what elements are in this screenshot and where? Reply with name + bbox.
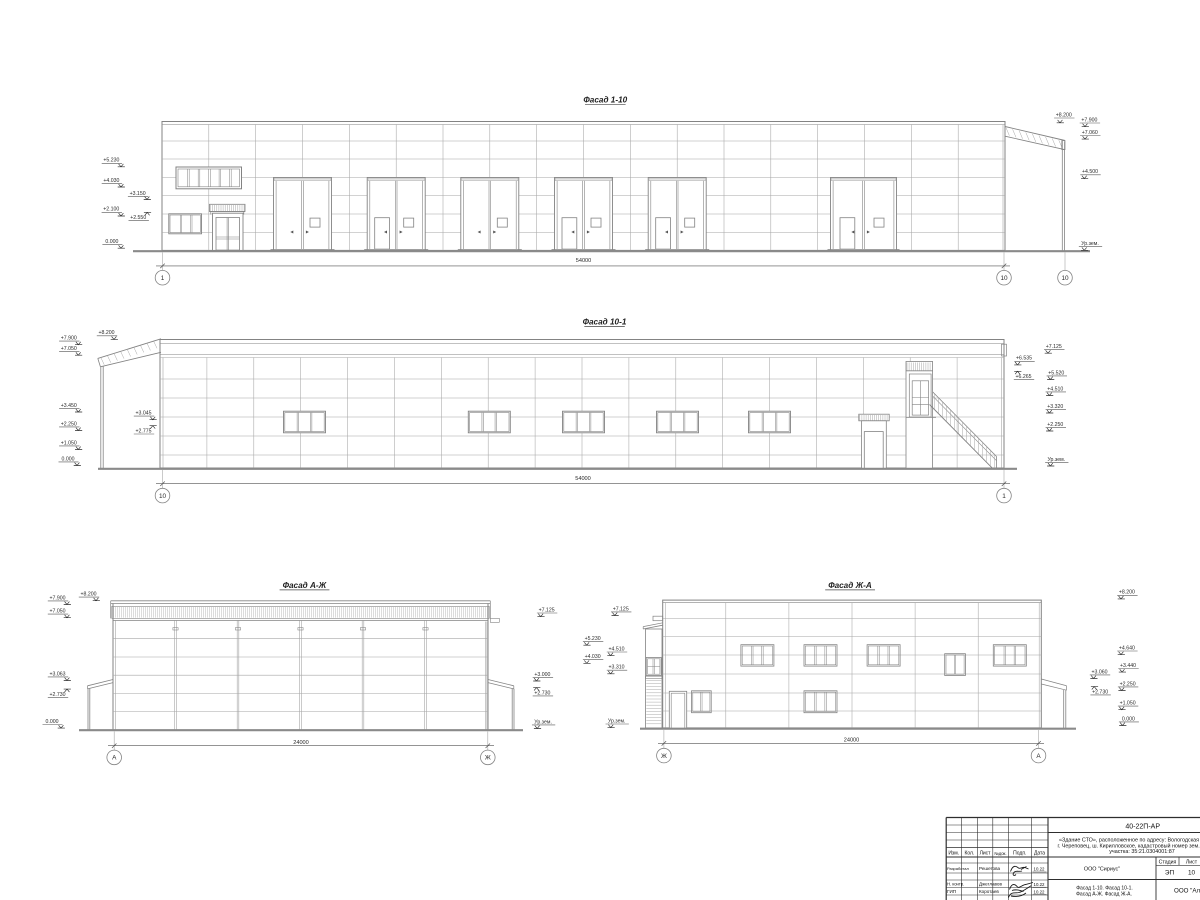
svg-text:1: 1: [161, 275, 165, 282]
svg-text:+3.450: +3.450: [61, 403, 77, 409]
svg-text:10.22: 10.22: [1034, 867, 1046, 872]
svg-text:10.22: 10.22: [1034, 889, 1046, 894]
svg-text:А: А: [112, 755, 117, 762]
svg-text:+8.200: +8.200: [80, 592, 96, 598]
svg-text:54000: 54000: [576, 258, 592, 264]
svg-text:+8.200: +8.200: [1119, 590, 1135, 596]
svg-text:+7.900: +7.900: [61, 336, 77, 342]
svg-text:Ур.зем.: Ур.зем.: [1047, 457, 1065, 463]
svg-text:10: 10: [1000, 275, 1008, 282]
svg-text:+7.125: +7.125: [1046, 344, 1062, 350]
svg-text:Ур.зем.: Ур.зем.: [608, 718, 626, 724]
svg-text:+5.230: +5.230: [585, 636, 601, 642]
svg-text:+3.440: +3.440: [1120, 663, 1136, 669]
svg-text:+2.730: +2.730: [1092, 689, 1108, 695]
svg-text:54000: 54000: [575, 476, 591, 482]
svg-text:№док.: №док.: [994, 851, 1006, 856]
svg-text:+5.230: +5.230: [103, 158, 119, 164]
svg-text:+7.050: +7.050: [61, 346, 77, 352]
svg-text:Лист: Лист: [980, 851, 992, 857]
svg-text:+3.150: +3.150: [130, 191, 146, 197]
svg-text:ЭП: ЭП: [1165, 870, 1175, 877]
svg-text:0.000: 0.000: [62, 456, 75, 462]
svg-text:0.000: 0.000: [46, 719, 59, 725]
svg-text:+7.050: +7.050: [49, 609, 65, 615]
svg-text:+7.125: +7.125: [613, 606, 629, 612]
svg-text:Фасад А-Ж. Фасад Ж-А.: Фасад А-Ж. Фасад Ж-А.: [1076, 892, 1132, 898]
svg-text:Фасад 1-10: Фасад 1-10: [583, 96, 627, 105]
svg-text:Изм.: Изм.: [948, 851, 959, 857]
svg-text:+2.550: +2.550: [130, 215, 146, 221]
svg-text:+2.250: +2.250: [1047, 422, 1063, 428]
svg-text:+7.125: +7.125: [539, 607, 555, 613]
svg-text:+1.050: +1.050: [61, 440, 77, 446]
svg-text:10.22: 10.22: [1034, 882, 1046, 887]
svg-text:+5.520: +5.520: [1048, 370, 1064, 376]
svg-text:+8.200: +8.200: [98, 330, 114, 336]
svg-text:10: 10: [159, 493, 167, 500]
svg-text:+4.500: +4.500: [1082, 169, 1098, 175]
svg-text:+6.535: +6.535: [1016, 356, 1032, 362]
svg-text:0.000: 0.000: [1122, 716, 1135, 722]
svg-text:+7.900: +7.900: [1081, 117, 1097, 123]
svg-text:+4.510: +4.510: [608, 646, 624, 652]
svg-text:Стадия: Стадия: [1159, 859, 1177, 865]
svg-text:+3.063: +3.063: [49, 671, 65, 677]
svg-text:+2.730: +2.730: [534, 690, 550, 696]
svg-text:+3.060: +3.060: [1091, 669, 1107, 675]
svg-text:+3.000: +3.000: [534, 672, 550, 678]
svg-text:+2.100: +2.100: [103, 207, 119, 213]
svg-text:+2.730: +2.730: [49, 692, 65, 698]
svg-text:Фасад Ж-А: Фасад Ж-А: [828, 581, 872, 590]
svg-text:24000: 24000: [293, 740, 309, 746]
svg-text:+8.200: +8.200: [1056, 112, 1072, 118]
svg-text:Фасад А-Ж: Фасад А-Ж: [283, 581, 327, 590]
svg-text:+3.045: +3.045: [135, 411, 151, 417]
svg-text:+4.640: +4.640: [1119, 645, 1135, 651]
svg-text:+4.510: +4.510: [1047, 386, 1063, 392]
svg-text:+1.050: +1.050: [1120, 701, 1136, 707]
svg-text:Решетова: Решетова: [979, 866, 1001, 871]
svg-text:+3.310: +3.310: [608, 665, 624, 671]
svg-text:+6.265: +6.265: [1015, 374, 1031, 380]
svg-text:24000: 24000: [844, 738, 860, 744]
svg-text:ГИП: ГИП: [947, 889, 956, 894]
svg-text:Дата: Дата: [1034, 851, 1045, 857]
svg-text:Ур.зем.: Ур.зем.: [1081, 241, 1099, 247]
svg-text:+2.775: +2.775: [135, 428, 151, 434]
svg-text:10: 10: [1061, 275, 1069, 282]
svg-text:+7.060: +7.060: [1082, 130, 1098, 136]
svg-text:+2.250: +2.250: [61, 421, 77, 427]
svg-text:Ур.зем.: Ур.зем.: [534, 719, 552, 725]
svg-text:ООО "Сириус": ООО "Сириус": [1084, 867, 1120, 873]
svg-text:Коротаев: Коротаев: [979, 889, 999, 894]
svg-text:Разработал: Разработал: [947, 866, 969, 871]
svg-text:+4.030: +4.030: [103, 178, 119, 184]
svg-text:Н. контр.: Н. контр.: [947, 882, 964, 887]
svg-text:+3.320: +3.320: [1047, 404, 1063, 410]
svg-text:Ж: Ж: [661, 753, 667, 760]
svg-text:0.000: 0.000: [105, 239, 118, 245]
svg-text:Фасад 10-1: Фасад 10-1: [583, 318, 627, 327]
svg-text:+2.250: +2.250: [1120, 681, 1136, 687]
svg-text:40-22П-АР: 40-22П-АР: [1125, 824, 1160, 831]
svg-text:Фасад 1-10. Фасад 10-1.: Фасад 1-10. Фасад 10-1.: [1076, 885, 1133, 891]
svg-text:+4.030: +4.030: [585, 654, 601, 660]
svg-text:Лист: Лист: [1186, 859, 1198, 865]
svg-text:Джеглавов: Джеглавов: [979, 882, 1002, 887]
svg-text:ООО "Алекс: ООО "Алекс: [1174, 888, 1200, 895]
svg-text:участка: 35:21.0304001:87: участка: 35:21.0304001:87: [1109, 849, 1175, 855]
svg-text:10: 10: [1188, 870, 1196, 877]
svg-text:Кол.: Кол.: [964, 851, 974, 857]
svg-text:Ж: Ж: [485, 755, 491, 762]
svg-text:+7.900: +7.900: [49, 595, 65, 601]
svg-text:1: 1: [1002, 493, 1006, 500]
svg-text:А: А: [1036, 753, 1041, 760]
svg-text:Подп.: Подп.: [1013, 851, 1026, 857]
